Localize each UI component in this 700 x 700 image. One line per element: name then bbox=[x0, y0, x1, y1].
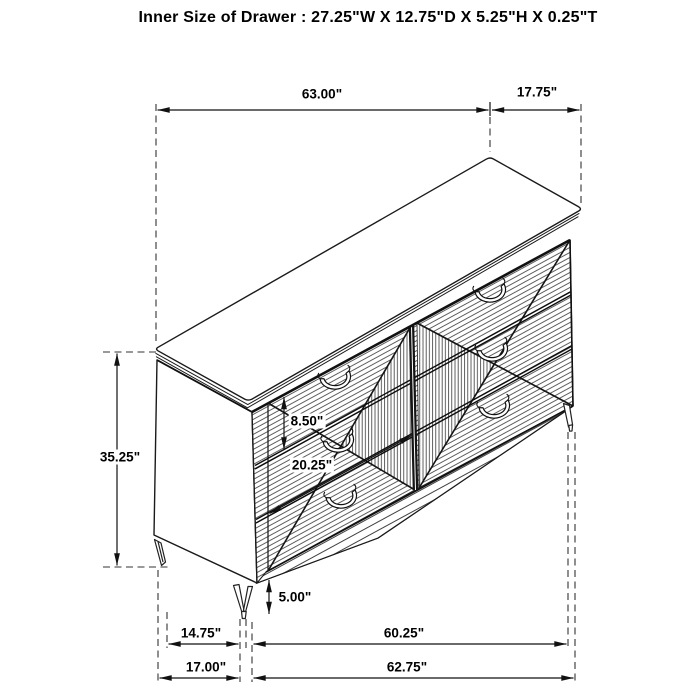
dim-label-top-depth: 17.75" bbox=[515, 85, 559, 100]
dim-label-floor-front-width: 62.75" bbox=[385, 660, 429, 675]
dim-label-overall-height: 35.25" bbox=[98, 450, 142, 465]
dim-label-leg-height: 5.00" bbox=[277, 590, 314, 605]
dresser-isometric-drawing bbox=[0, 0, 700, 700]
dim-label-base-front-width: 60.25" bbox=[382, 626, 426, 641]
back-left-leg bbox=[155, 540, 166, 566]
dim-label-floor-side-depth: 17.00" bbox=[184, 660, 228, 675]
front-left-leg bbox=[234, 585, 253, 619]
dim-label-drawer-front-height: 8.50" bbox=[289, 414, 326, 429]
dimension-diagram: Inner Size of Drawer : 27.25"W X 12.75"D… bbox=[0, 0, 700, 700]
page-title: Inner Size of Drawer : 27.25"W X 12.75"D… bbox=[138, 9, 597, 27]
dim-label-base-side-depth: 14.75" bbox=[179, 626, 223, 641]
dresser bbox=[154, 158, 580, 618]
dim-label-drawer-width: 20.25" bbox=[290, 458, 334, 473]
dim-label-top-width: 63.00" bbox=[300, 87, 344, 102]
